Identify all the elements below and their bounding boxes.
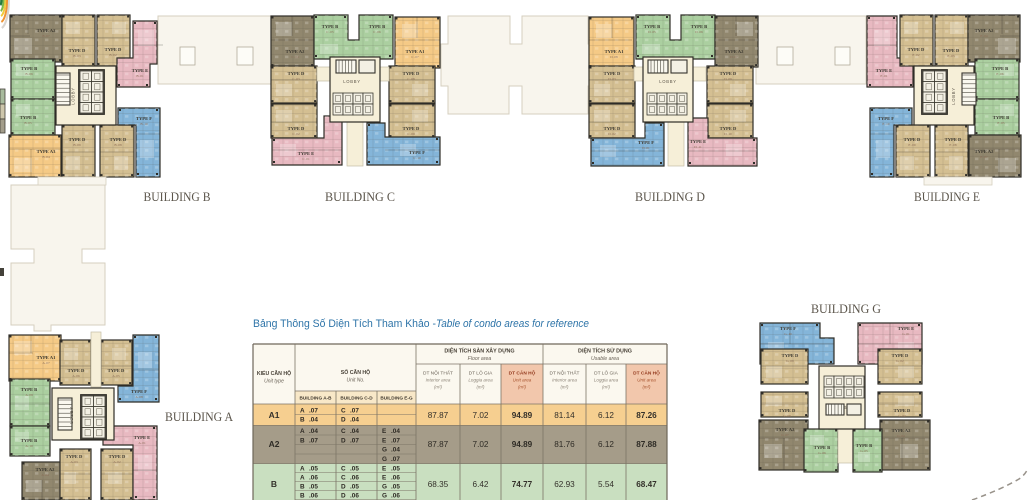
svg-text:C .09: C .09 xyxy=(407,132,415,136)
svg-text:C .06: C .06 xyxy=(373,30,381,34)
svg-text:TYPE B: TYPE B xyxy=(20,115,36,120)
svg-text:D: D xyxy=(341,437,346,444)
svg-text:C: C xyxy=(341,475,346,482)
svg-text:B: B xyxy=(300,493,305,500)
svg-text:DT LÔ GIA: DT LÔ GIA xyxy=(469,370,493,377)
svg-text:DIỆN TÍCH SÀN XÂY DỰNG: DIỆN TÍCH SÀN XÂY DỰNG xyxy=(444,347,514,355)
svg-text:.05: .05 xyxy=(350,466,359,473)
svg-text:E: E xyxy=(382,466,387,473)
svg-text:TYPE D: TYPE D xyxy=(69,48,86,53)
svg-text:.07: .07 xyxy=(309,408,318,415)
svg-text:TYPE A1: TYPE A1 xyxy=(37,355,56,360)
svg-text:B: B xyxy=(300,484,305,491)
svg-text:C: C xyxy=(341,466,346,473)
svg-text:TYPE D: TYPE D xyxy=(720,71,737,76)
svg-text:.04: .04 xyxy=(309,428,318,435)
svg-text:A: A xyxy=(300,475,305,482)
svg-text:.07: .07 xyxy=(391,437,400,444)
svg-text:TYPE A2: TYPE A2 xyxy=(892,428,911,433)
svg-text:TYPE D: TYPE D xyxy=(69,137,86,142)
svg-text:D: D xyxy=(341,484,346,491)
svg-text:94.89: 94.89 xyxy=(512,411,533,420)
svg-text:TYPE D: TYPE D xyxy=(604,71,621,76)
svg-text:E .09: E .09 xyxy=(908,143,915,147)
svg-text:TYPE D: TYPE D xyxy=(943,48,960,53)
svg-text:(m²): (m²) xyxy=(476,385,485,390)
svg-text:TYPE F: TYPE F xyxy=(131,389,147,394)
svg-text:G: G xyxy=(382,484,387,491)
svg-text:TYPE E: TYPE E xyxy=(298,151,314,156)
svg-text:.06: .06 xyxy=(391,475,400,482)
svg-text:D .11: D .11 xyxy=(694,145,702,149)
svg-text:A1: A1 xyxy=(269,410,280,420)
svg-text:(m²): (m²) xyxy=(518,385,527,390)
svg-text:E .10: E .10 xyxy=(882,122,889,126)
svg-text:87.88: 87.88 xyxy=(636,440,657,449)
svg-text:Unit No.: Unit No. xyxy=(346,378,364,384)
svg-text:C .08: C .08 xyxy=(407,77,415,81)
svg-text:Loggia area: Loggia area xyxy=(594,378,619,383)
svg-text:TYPE B: TYPE B xyxy=(993,115,1009,120)
svg-text:G .02: G .02 xyxy=(896,359,904,363)
svg-text:Unit type: Unit type xyxy=(264,379,284,385)
svg-text:Unit area: Unit area xyxy=(513,378,532,383)
svg-text:TYPE E: TYPE E xyxy=(690,139,706,144)
svg-text:G: G xyxy=(382,493,387,500)
svg-text:68.47: 68.47 xyxy=(636,480,657,489)
svg-text:BUILDING B: BUILDING B xyxy=(144,189,211,204)
svg-text:81.14: 81.14 xyxy=(554,411,575,420)
svg-text:.06: .06 xyxy=(350,493,359,500)
svg-text:B .09: B .09 xyxy=(73,143,81,147)
svg-text:TYPE A2: TYPE A2 xyxy=(286,49,305,54)
svg-text:BUILDING E: BUILDING E xyxy=(914,189,980,204)
svg-text:TYPE F: TYPE F xyxy=(409,150,425,155)
svg-text:A .02: A .02 xyxy=(113,460,121,464)
svg-text:.06: .06 xyxy=(350,475,359,482)
svg-text:B .04: B .04 xyxy=(42,155,50,159)
svg-text:C: C xyxy=(341,408,346,415)
svg-text:TYPE B: TYPE B xyxy=(856,443,872,448)
svg-text:DT NỘI THẤT: DT NỘI THẤT xyxy=(550,370,580,377)
svg-text:TYPE D: TYPE D xyxy=(904,137,921,142)
svg-text:.06: .06 xyxy=(309,493,318,500)
svg-text:E .07: E .07 xyxy=(980,155,987,159)
svg-text:G .08: G .08 xyxy=(783,414,791,418)
svg-text:C .04: C .04 xyxy=(291,55,299,59)
svg-text:6.12: 6.12 xyxy=(598,411,614,420)
svg-text:74.77: 74.77 xyxy=(512,480,533,489)
svg-text:BUILDING C: BUILDING C xyxy=(325,189,395,204)
svg-text:.07: .07 xyxy=(350,437,359,444)
svg-text:TYPE E: TYPE E xyxy=(898,326,914,331)
svg-text:TYPE F: TYPE F xyxy=(780,326,796,331)
svg-text:E .01: E .01 xyxy=(880,74,887,78)
svg-text:TYPE D: TYPE D xyxy=(110,137,127,142)
svg-text:C .03: C .03 xyxy=(292,77,300,81)
svg-text:C .07: C .07 xyxy=(411,55,419,59)
svg-text:6.42: 6.42 xyxy=(473,480,489,489)
svg-text:TYPE D: TYPE D xyxy=(68,368,85,373)
svg-text:TYPE E: TYPE E xyxy=(876,68,892,73)
svg-text:LOBBY: LOBBY xyxy=(659,79,676,84)
svg-text:TYPE B: TYPE B xyxy=(322,24,338,29)
svg-text:C: C xyxy=(341,428,346,435)
svg-text:7.02: 7.02 xyxy=(473,411,489,420)
svg-text:SỐ CĂN HỘ: SỐ CĂN HỘ xyxy=(341,368,370,376)
svg-text:TYPE D: TYPE D xyxy=(945,137,962,142)
svg-text:BUILDING G: BUILDING G xyxy=(811,301,881,316)
svg-text:Bảng Thông Số Diện Tích Tham K: Bảng Thông Số Diện Tích Tham Khảo -Table… xyxy=(253,318,589,330)
svg-text:BUILDING A: BUILDING A xyxy=(165,409,234,424)
svg-text:68.35: 68.35 xyxy=(428,480,449,489)
svg-text:A .08: A .08 xyxy=(135,395,143,399)
svg-text:TYPE D: TYPE D xyxy=(892,353,909,358)
svg-text:TYPE D: TYPE D xyxy=(105,47,122,52)
svg-text:D .09: D .09 xyxy=(724,77,732,81)
svg-text:TYPE A2: TYPE A2 xyxy=(725,49,744,54)
svg-text:87.87: 87.87 xyxy=(428,411,449,420)
svg-text:A .01: A .01 xyxy=(138,441,146,445)
svg-text:A .06: A .06 xyxy=(72,374,80,378)
svg-text:B .05: B .05 xyxy=(24,121,32,125)
svg-text:TYPE D: TYPE D xyxy=(66,454,83,459)
svg-text:D .07: D .07 xyxy=(730,55,738,59)
svg-text:.05: .05 xyxy=(391,484,400,491)
svg-text:G .04: G .04 xyxy=(897,434,905,438)
svg-text:D .03: D .03 xyxy=(608,77,616,81)
svg-text:6.12: 6.12 xyxy=(598,440,614,449)
svg-text:BUILDING D: BUILDING D xyxy=(635,189,705,204)
svg-text:(m²): (m²) xyxy=(602,385,611,390)
svg-text:E: E xyxy=(382,428,387,435)
svg-text:A .03: A .03 xyxy=(70,460,78,464)
svg-text:B: B xyxy=(271,479,277,489)
svg-text:.05: .05 xyxy=(309,484,318,491)
svg-text:TYPE F: TYPE F xyxy=(878,116,894,121)
svg-text:TYPE A3: TYPE A3 xyxy=(37,149,56,154)
svg-text:.04: .04 xyxy=(391,428,400,435)
svg-text:B .01: B .01 xyxy=(136,74,144,78)
svg-text:TYPE D: TYPE D xyxy=(908,47,925,52)
svg-text:A: A xyxy=(300,408,305,415)
svg-text:LOBBY: LOBBY xyxy=(343,79,360,84)
svg-text:D .08: D .08 xyxy=(610,55,618,59)
svg-text:TYPE F: TYPE F xyxy=(136,116,152,121)
svg-text:TYPE D: TYPE D xyxy=(288,71,305,76)
svg-text:G .05: G .05 xyxy=(860,449,868,453)
svg-text:TYPE B: TYPE B xyxy=(21,66,37,71)
svg-text:G .09: G .09 xyxy=(786,359,794,363)
svg-text:B .02: B .02 xyxy=(109,53,117,57)
svg-text:B: B xyxy=(300,437,305,444)
svg-text:E .03: E .03 xyxy=(947,54,954,58)
svg-text:B: B xyxy=(300,417,305,424)
svg-text:.04: .04 xyxy=(350,417,359,424)
svg-text:Unit area: Unit area xyxy=(637,378,656,383)
svg-text:A .04: A .04 xyxy=(41,473,49,477)
svg-text:LOBBY: LOBBY xyxy=(69,406,74,423)
svg-text:87.87: 87.87 xyxy=(428,440,449,449)
svg-text:B .10: B .10 xyxy=(140,122,148,126)
svg-text:D .10: D .10 xyxy=(724,132,732,136)
svg-text:D .06: D .06 xyxy=(695,30,703,34)
svg-text:TYPE D: TYPE D xyxy=(403,71,420,76)
svg-text:TYPE E: TYPE E xyxy=(132,68,148,73)
svg-text:5.54: 5.54 xyxy=(598,480,614,489)
svg-text:E: E xyxy=(382,437,387,444)
svg-text:TYPE A2: TYPE A2 xyxy=(975,28,994,33)
svg-text:Usable area: Usable area xyxy=(591,356,619,362)
svg-text:LOBBY: LOBBY xyxy=(951,87,956,104)
svg-text:Loggia area: Loggia area xyxy=(468,378,493,383)
svg-text:(m²): (m²) xyxy=(642,385,651,390)
svg-text:TYPE F: TYPE F xyxy=(638,140,654,145)
svg-text:7.02: 7.02 xyxy=(473,440,489,449)
svg-text:C .02: C .02 xyxy=(292,132,300,136)
svg-text:A2: A2 xyxy=(269,439,280,449)
svg-text:TYPE D: TYPE D xyxy=(720,126,737,131)
svg-text:DT LÔ GIA: DT LÔ GIA xyxy=(594,370,618,377)
svg-text:Floor area: Floor area xyxy=(468,356,492,362)
svg-text:TYPE D: TYPE D xyxy=(782,353,799,358)
svg-text:TYPE D: TYPE D xyxy=(108,368,125,373)
svg-text:E .02: E .02 xyxy=(912,53,919,57)
svg-text:TYPE B: TYPE B xyxy=(992,66,1008,71)
svg-text:BUILDING C-D: BUILDING C-D xyxy=(340,396,373,401)
svg-text:.05: .05 xyxy=(350,484,359,491)
svg-text:.07: .07 xyxy=(391,456,400,463)
svg-text:G .07: G .07 xyxy=(781,433,789,437)
svg-text:.04: .04 xyxy=(309,417,318,424)
svg-text:B .08: B .08 xyxy=(114,143,122,147)
svg-text:C .01: C .01 xyxy=(302,157,310,161)
svg-text:TYPE D: TYPE D xyxy=(894,408,911,413)
svg-text:TYPE D: TYPE D xyxy=(109,454,126,459)
svg-text:E .06: E .06 xyxy=(996,72,1003,76)
svg-text:.07: .07 xyxy=(309,437,318,444)
svg-text:B .06: B .06 xyxy=(25,72,33,76)
svg-text:A .09: A .09 xyxy=(25,393,33,397)
svg-text:62.93: 62.93 xyxy=(554,480,575,489)
svg-text:Interior area: Interior area xyxy=(552,378,577,383)
svg-text:A .07: A .07 xyxy=(42,361,50,365)
svg-text:KIỂU CĂN HỘ: KIỂU CĂN HỘ xyxy=(257,369,291,377)
svg-text:TYPE A2: TYPE A2 xyxy=(776,427,795,432)
svg-text:.06: .06 xyxy=(391,493,400,500)
svg-text:A .10: A .10 xyxy=(25,444,33,448)
svg-text:TYPE B: TYPE B xyxy=(21,387,37,392)
svg-text:E .05: E .05 xyxy=(997,121,1004,125)
svg-text:B .07: B .07 xyxy=(42,34,50,38)
svg-text:A: A xyxy=(300,428,305,435)
svg-text:.06: .06 xyxy=(309,475,318,482)
svg-text:TYPE B: TYPE B xyxy=(644,24,660,29)
svg-text:BUILDING A-B: BUILDING A-B xyxy=(299,396,332,401)
svg-text:A .05: A .05 xyxy=(112,374,120,378)
svg-text:G .01: G .01 xyxy=(902,332,910,336)
svg-text:G .10: G .10 xyxy=(784,332,792,336)
svg-text:TYPE A1: TYPE A1 xyxy=(406,49,425,54)
svg-text:TYPE A2: TYPE A2 xyxy=(975,149,994,154)
svg-text:G .06: G .06 xyxy=(818,451,826,455)
svg-text:E .04: E .04 xyxy=(980,34,987,38)
svg-text:C .05: C .05 xyxy=(326,30,334,34)
svg-text:D .01: D .01 xyxy=(642,146,650,150)
svg-text:TYPE A1: TYPE A1 xyxy=(605,49,624,54)
svg-text:TYPE A2: TYPE A2 xyxy=(36,467,55,472)
svg-text:94.89: 94.89 xyxy=(512,440,533,449)
svg-text:Interior area: Interior area xyxy=(426,378,451,383)
svg-text:TYPE D: TYPE D xyxy=(604,126,621,131)
svg-text:.07: .07 xyxy=(350,408,359,415)
svg-text:81.76: 81.76 xyxy=(554,440,575,449)
svg-text:TYPE D: TYPE D xyxy=(779,408,796,413)
svg-text:D .05: D .05 xyxy=(648,30,656,34)
svg-text:.05: .05 xyxy=(391,466,400,473)
svg-text:(m²): (m²) xyxy=(434,385,443,390)
svg-text:TYPE B: TYPE B xyxy=(21,438,37,443)
svg-text:.04: .04 xyxy=(391,447,400,454)
svg-text:A: A xyxy=(300,466,305,473)
svg-text:(m²): (m²) xyxy=(560,385,569,390)
svg-text:.04: .04 xyxy=(350,428,359,435)
svg-text:BUILDING E-G: BUILDING E-G xyxy=(380,396,413,401)
svg-text:E: E xyxy=(382,475,387,482)
svg-text:E .08: E .08 xyxy=(949,143,956,147)
svg-text:TYPE D: TYPE D xyxy=(288,126,305,131)
svg-text:G .03: G .03 xyxy=(898,414,906,418)
svg-text:D: D xyxy=(341,417,346,424)
svg-text:G: G xyxy=(382,447,387,454)
svg-text:B .03: B .03 xyxy=(73,54,81,58)
svg-text:TYPE B: TYPE B xyxy=(369,24,385,29)
svg-text:C .10: C .10 xyxy=(413,156,421,160)
svg-text:TYPE B: TYPE B xyxy=(691,24,707,29)
svg-text:D: D xyxy=(341,493,346,500)
svg-text:87.26: 87.26 xyxy=(636,411,657,420)
svg-text:DIỆN TÍCH SỬ DỤNG: DIỆN TÍCH SỬ DỤNG xyxy=(578,347,632,355)
svg-text:TYPE B: TYPE B xyxy=(814,445,830,450)
svg-text:G: G xyxy=(382,456,387,463)
svg-text:TYPE D: TYPE D xyxy=(403,126,420,131)
svg-text:DT NỘI THẤT: DT NỘI THẤT xyxy=(423,370,453,377)
svg-text:TYPE E: TYPE E xyxy=(134,435,150,440)
svg-text:.05: .05 xyxy=(309,466,318,473)
svg-text:D .02: D .02 xyxy=(608,132,616,136)
svg-text:LOBBY: LOBBY xyxy=(71,87,76,104)
svg-text:TYPE A2: TYPE A2 xyxy=(37,28,56,33)
